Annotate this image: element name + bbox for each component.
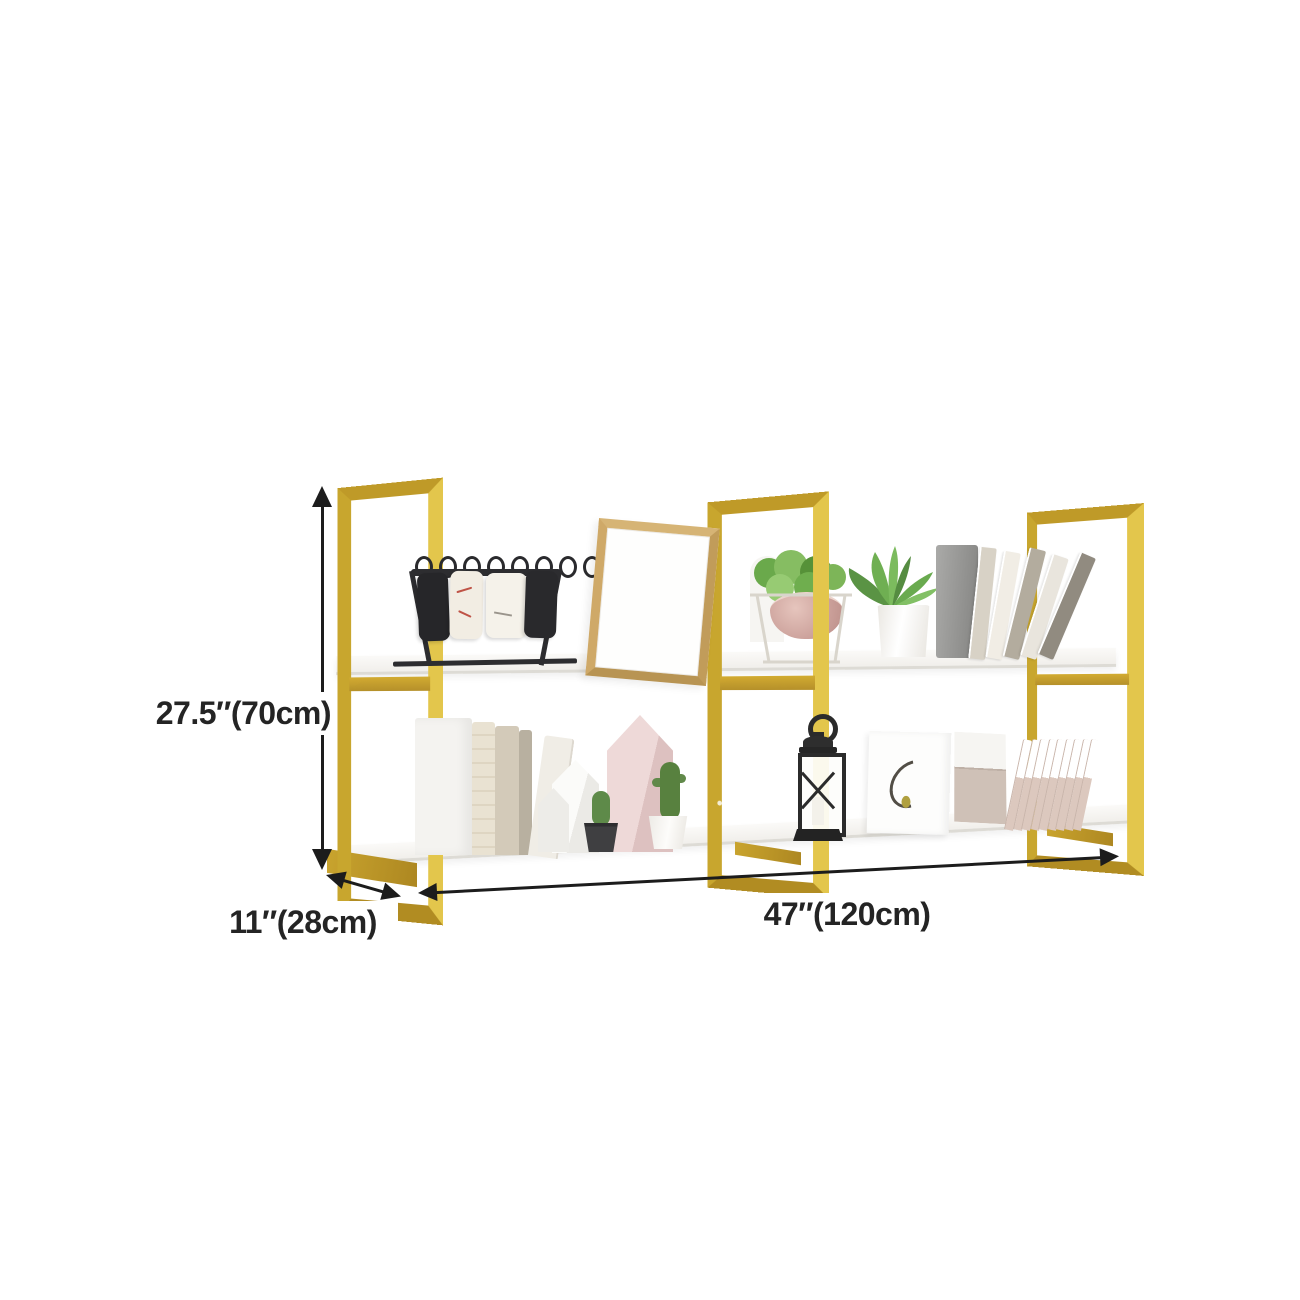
lantern-body bbox=[798, 753, 846, 837]
book bbox=[472, 722, 495, 855]
artwork-scribble bbox=[880, 751, 943, 817]
aloe-leaves bbox=[845, 540, 940, 610]
file-box bbox=[950, 732, 1012, 825]
book bbox=[415, 718, 472, 855]
candle bbox=[812, 797, 824, 825]
calendar-card bbox=[449, 571, 483, 640]
picture-frame bbox=[585, 518, 719, 686]
lantern-base bbox=[793, 829, 843, 841]
width-dimension-label: 47″(120cm) bbox=[742, 893, 952, 936]
cactus-in-white-pot bbox=[646, 762, 690, 850]
candle-lantern bbox=[793, 714, 843, 842]
gold-frame-left bbox=[338, 478, 443, 926]
frame-crossbar bbox=[720, 676, 815, 691]
calendar-card bbox=[486, 573, 527, 638]
aloe-plant bbox=[845, 540, 940, 658]
cactus bbox=[592, 791, 610, 826]
canvas-print bbox=[867, 731, 952, 835]
flip-calendar bbox=[393, 556, 577, 668]
depth-dimension-label: 11″(28cm) bbox=[208, 901, 398, 944]
cactus-in-black-pot bbox=[582, 791, 620, 852]
product-image: 27.5″(70cm) 11″(28cm) 47″(120cm) bbox=[0, 0, 1300, 1300]
height-dimension-label: 27.5″(70cm) bbox=[128, 692, 331, 735]
calendar-card bbox=[524, 570, 558, 638]
leaning-magazines bbox=[968, 538, 1072, 662]
folder-row bbox=[1005, 733, 1085, 830]
screw-hole bbox=[717, 801, 722, 806]
white-pot bbox=[648, 816, 688, 849]
frame-crossbar bbox=[1035, 674, 1129, 685]
book bbox=[495, 726, 519, 855]
calendar-card bbox=[417, 572, 450, 641]
white-pot bbox=[876, 605, 931, 657]
height-dimension-arrow-icon bbox=[311, 486, 333, 870]
calendar-base bbox=[393, 658, 577, 666]
screw-hole bbox=[353, 754, 358, 759]
cactus bbox=[660, 762, 680, 820]
frame-crossbar bbox=[349, 677, 430, 692]
black-pot bbox=[584, 823, 618, 852]
screw-hole bbox=[353, 551, 358, 556]
